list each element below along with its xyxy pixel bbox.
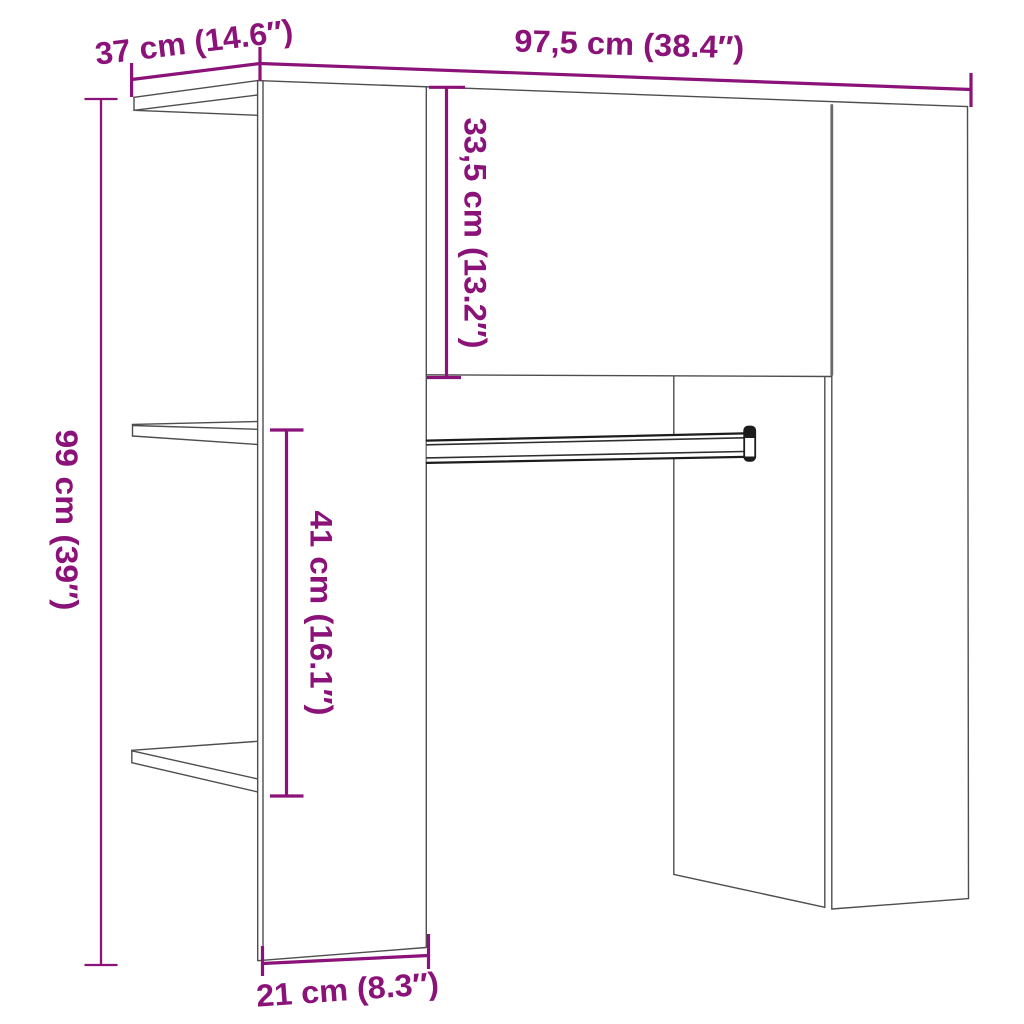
svg-text:99 cm (39″): 99 cm (39″) xyxy=(49,430,85,611)
svg-text:97,5 cm (38.4″): 97,5 cm (38.4″) xyxy=(514,23,745,66)
svg-text:41 cm (16.1″): 41 cm (16.1″) xyxy=(304,511,340,716)
svg-text:33,5 cm (13.2″): 33,5 cm (13.2″) xyxy=(458,118,494,349)
